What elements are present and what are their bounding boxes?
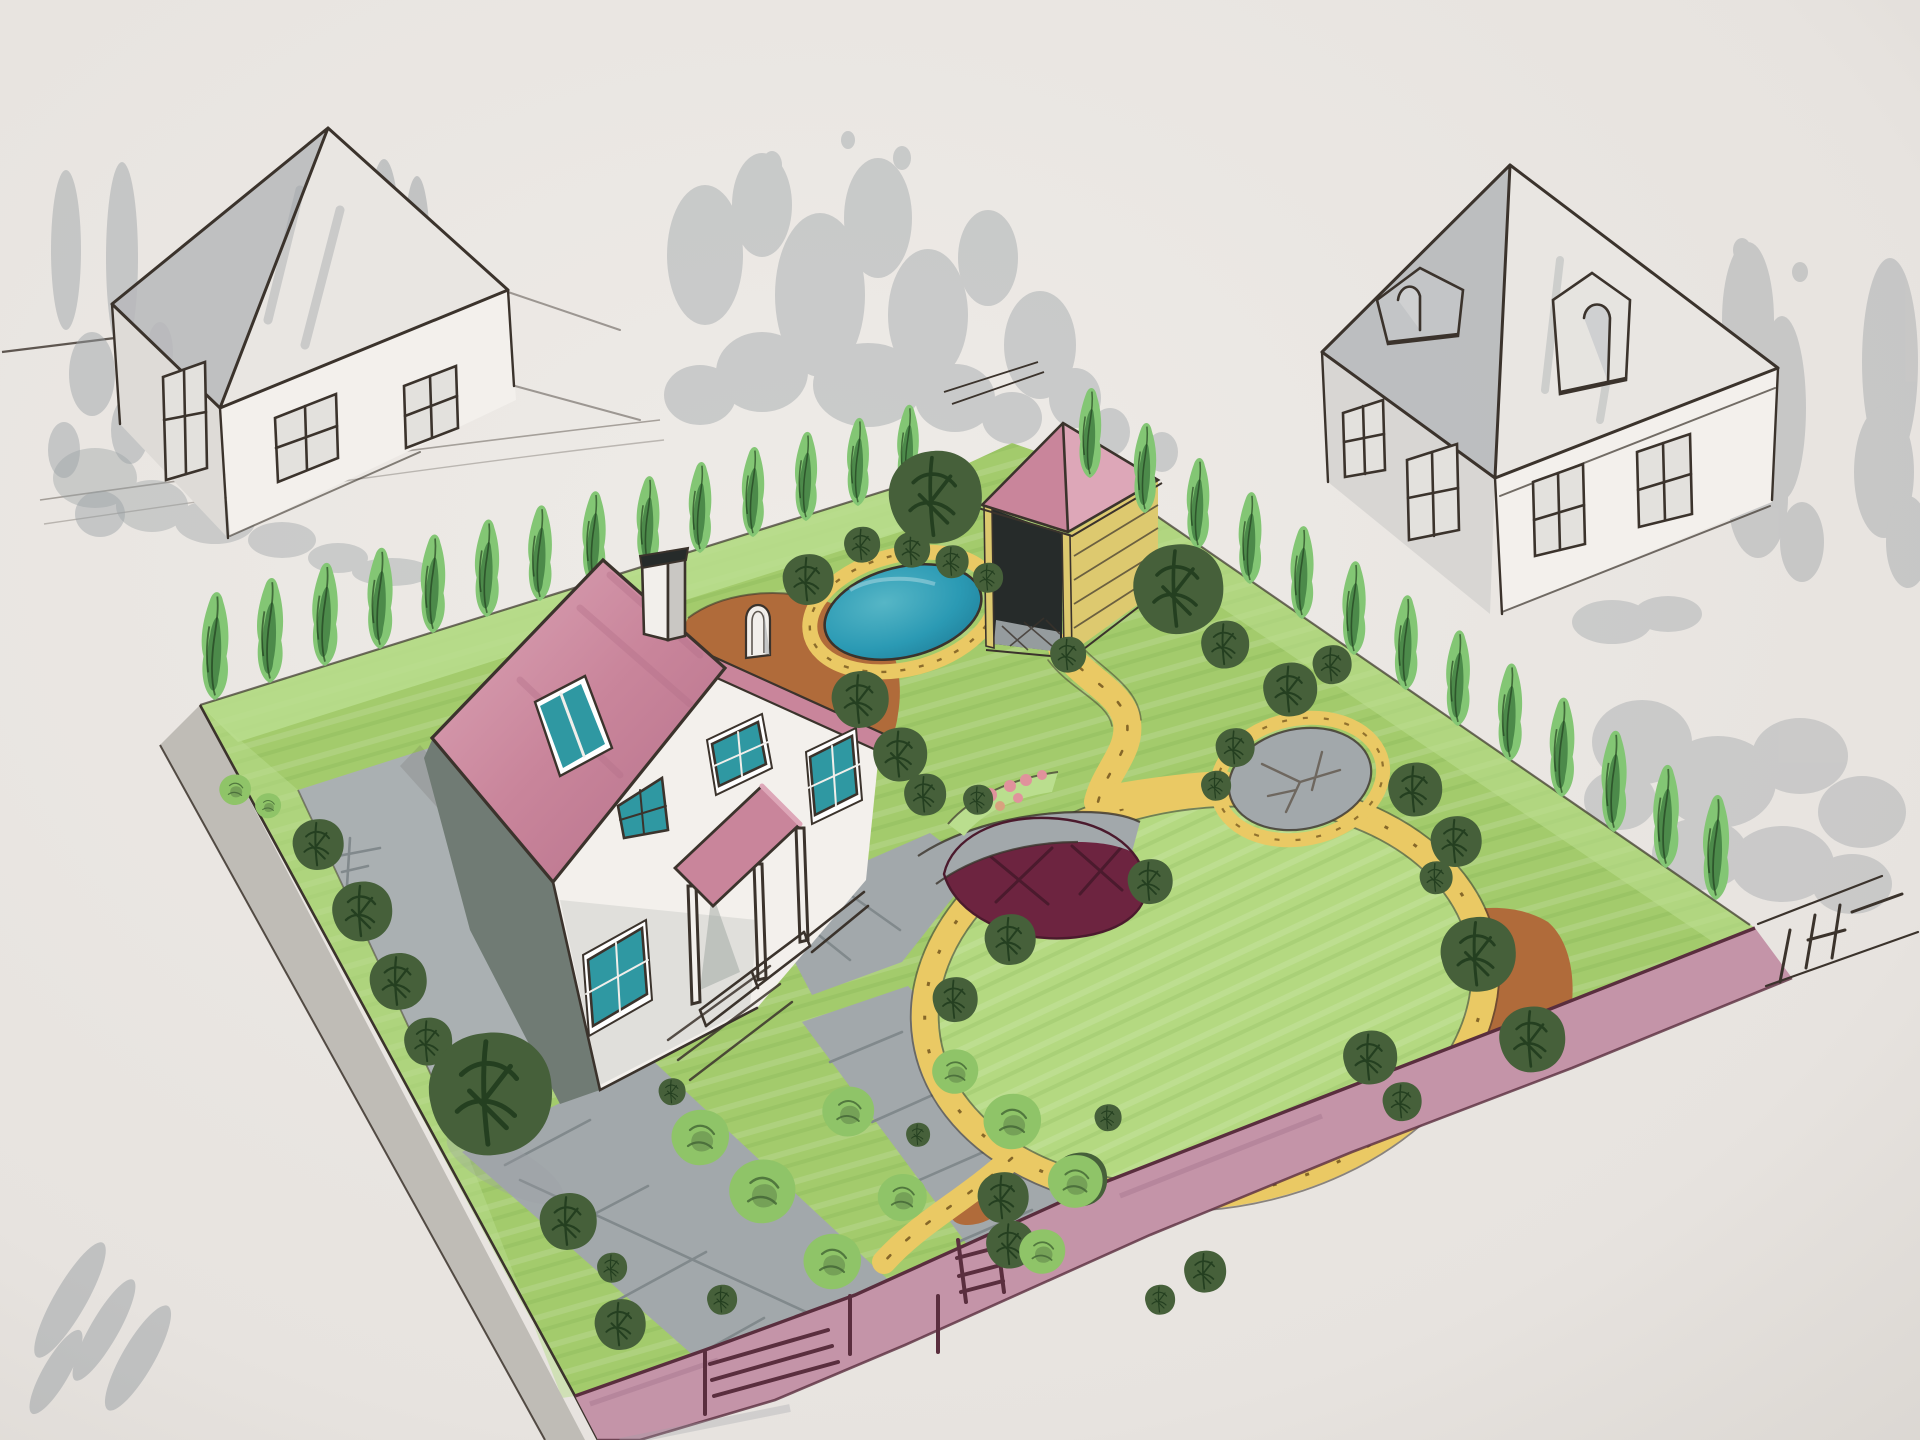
round-tree <box>1201 771 1231 801</box>
gazebo-post-front <box>1062 533 1072 655</box>
round-tree <box>1133 544 1223 634</box>
round-tree <box>1431 816 1482 867</box>
sketch-canvas <box>0 0 1920 1440</box>
round-tree <box>933 977 978 1022</box>
chimney <box>640 548 688 640</box>
small-shrub <box>659 1078 686 1105</box>
round-tree <box>1263 663 1317 717</box>
round-tree <box>595 1299 646 1350</box>
round-tree <box>1313 645 1352 684</box>
round-tree <box>783 554 834 605</box>
small-shrub <box>906 1123 930 1147</box>
round-tree <box>370 953 427 1010</box>
round-tree <box>332 882 392 942</box>
round-tree <box>963 785 993 815</box>
round-tree <box>429 1032 552 1155</box>
round-tree <box>1216 728 1255 767</box>
round-tree <box>1420 861 1453 894</box>
round-tree <box>1441 917 1516 992</box>
round-tree <box>1050 637 1086 673</box>
round-tree <box>936 545 969 578</box>
round-tree <box>1128 859 1173 904</box>
round-tree <box>1184 1251 1226 1293</box>
round-tree <box>1343 1031 1397 1085</box>
round-tree <box>889 451 982 544</box>
small-shrub <box>707 1285 737 1315</box>
round-tree <box>597 1253 627 1283</box>
small-shrub <box>1145 1285 1175 1315</box>
round-tree <box>973 563 1003 593</box>
round-tree <box>540 1193 597 1250</box>
round-tree <box>985 914 1036 965</box>
small-shrub <box>1095 1104 1122 1131</box>
round-tree <box>844 527 880 563</box>
round-tree <box>1499 1006 1565 1072</box>
round-tree <box>873 728 927 782</box>
round-tree <box>1201 621 1249 669</box>
round-tree <box>1383 1082 1422 1121</box>
round-tree <box>904 774 946 816</box>
round-tree <box>1388 763 1442 817</box>
round-tree <box>978 1172 1029 1223</box>
round-tree <box>832 671 889 728</box>
garden-arch <box>746 605 770 658</box>
round-tree <box>293 819 344 870</box>
landscape-sketch <box>0 0 1920 1440</box>
